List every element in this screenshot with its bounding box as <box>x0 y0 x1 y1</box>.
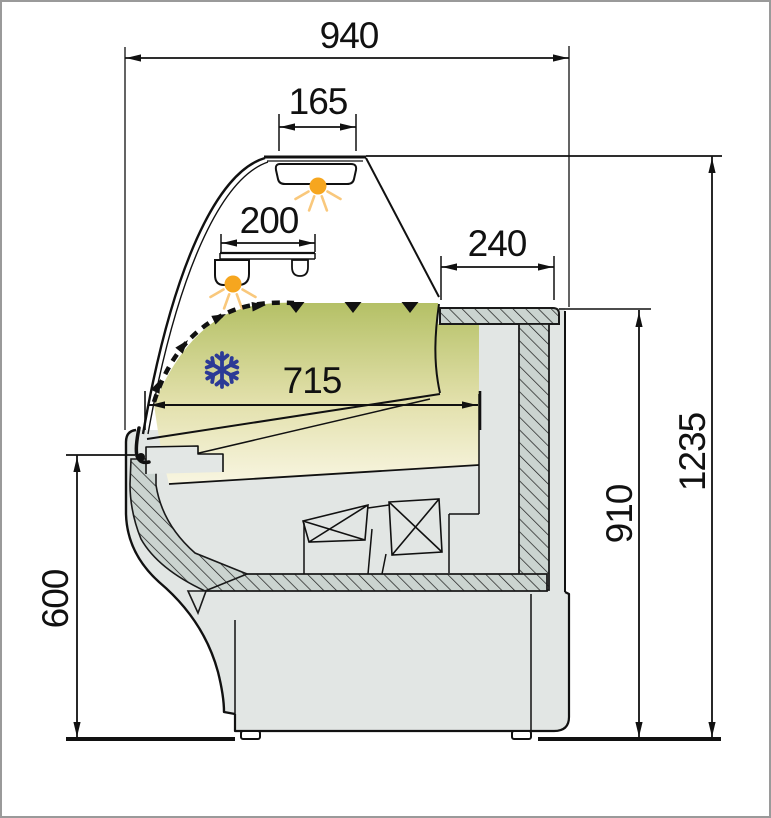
shelf-tag-rail <box>292 260 308 276</box>
canopy-rear-slope <box>366 158 439 297</box>
dim-label-display-depth: 715 <box>283 360 342 401</box>
dim-label-counter-top-height: 910 <box>599 484 640 543</box>
feet-and-ground <box>66 731 721 739</box>
display-case-cross-section: 940 165 200 240 715 1235 910 600 <box>2 2 771 818</box>
rear-foot <box>512 731 531 739</box>
dim-label-overall-width: 940 <box>320 15 379 56</box>
dim-label-shelf-depth: 200 <box>240 200 299 241</box>
top-rim-hatch <box>440 308 559 324</box>
dim-label-light-unit-width: 165 <box>289 81 348 122</box>
technical-drawing-canvas: 940 165 200 240 715 1235 910 600 <box>0 0 771 818</box>
dim-label-rear-top-depth: 240 <box>468 223 527 264</box>
rear-wall-hatch <box>519 324 549 590</box>
front-foot <box>241 731 260 739</box>
glass-retainer-hub <box>137 453 145 461</box>
dim-label-overall-height: 1235 <box>672 412 713 491</box>
dim-label-front-panel-height: 600 <box>35 569 76 628</box>
